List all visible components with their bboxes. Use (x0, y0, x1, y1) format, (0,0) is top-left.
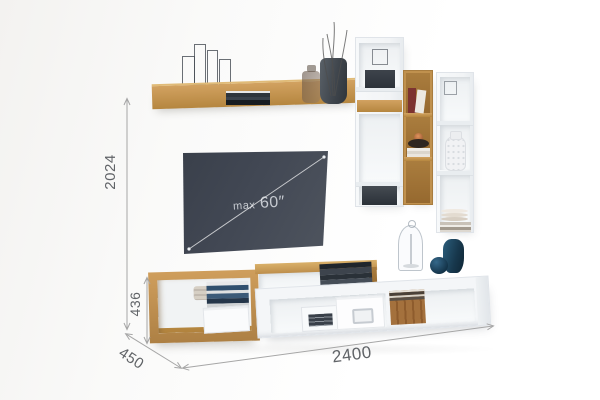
plate-stack (441, 209, 468, 222)
books-on-shelf (226, 91, 270, 105)
cloche-knob (408, 220, 416, 228)
stand-oak-box (148, 270, 260, 344)
dark-storage-box (362, 186, 397, 205)
wooden-crate (389, 289, 426, 325)
vent-box (301, 305, 339, 332)
wall-cabinet-right (436, 72, 474, 233)
dimension-stand-height: 436 (127, 285, 143, 323)
wire-cube-decor (372, 49, 388, 65)
dimension-overall-height: 2024 (103, 150, 119, 194)
glass-cloche (398, 225, 423, 271)
white-book-stack (407, 148, 430, 157)
wall-cabinet-oak (403, 70, 433, 205)
dimension-depth: 450 (108, 340, 154, 377)
vase-neck (450, 131, 462, 140)
vase-with-branches (320, 58, 347, 104)
glass-jar-neck (307, 65, 316, 72)
white-dotted-vase (445, 136, 466, 171)
wall-cabinet-left (355, 37, 404, 207)
glass-jar (302, 71, 320, 103)
wire-cube-decor-small (444, 81, 457, 95)
magazine-stack (440, 222, 471, 232)
tv-max-size: 60″ (259, 193, 285, 211)
vent-grille (308, 313, 333, 326)
tv-max-prefix: max (233, 199, 256, 212)
wire-sculpture (180, 42, 236, 87)
shelf-through-cabinet (357, 100, 402, 112)
white-gift-box (203, 305, 251, 334)
teal-vase-sphere (430, 257, 448, 274)
dark-planter-box (365, 70, 395, 88)
candle-bowl (408, 139, 429, 148)
wall-unit-product-render: max 60″ (0, 0, 600, 400)
label-frame (352, 308, 374, 324)
label-box (335, 294, 385, 330)
